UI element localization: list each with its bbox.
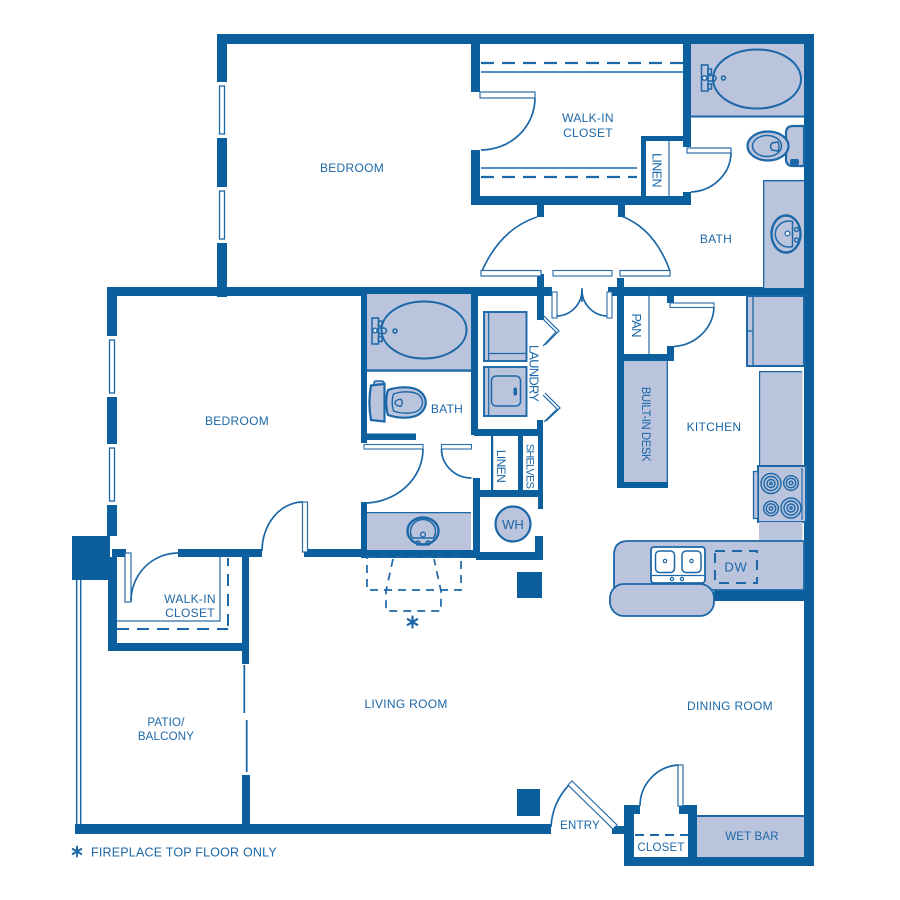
svg-text:LIVING ROOM: LIVING ROOM: [364, 697, 447, 711]
svg-text:CLOSET: CLOSET: [563, 126, 613, 140]
svg-text:LINEN: LINEN: [494, 450, 508, 482]
svg-text:BUILT-IN DESK: BUILT-IN DESK: [639, 387, 651, 462]
svg-text:BEDROOM: BEDROOM: [205, 414, 269, 428]
svg-text:DW: DW: [724, 560, 747, 575]
svg-text:ENTRY: ENTRY: [560, 820, 600, 832]
svg-text:CLOSET: CLOSET: [637, 842, 684, 854]
svg-text:PAN: PAN: [629, 313, 644, 337]
svg-text:LAUNDRY: LAUNDRY: [527, 345, 542, 402]
svg-text:WALK-IN: WALK-IN: [562, 111, 614, 125]
svg-text:KITCHEN: KITCHEN: [687, 420, 742, 434]
svg-text:DINING ROOM: DINING ROOM: [687, 699, 773, 713]
svg-text:BALCONY: BALCONY: [138, 731, 194, 743]
svg-text:BEDROOM: BEDROOM: [320, 161, 384, 175]
svg-text:BATH: BATH: [700, 232, 732, 246]
svg-text:WET BAR: WET BAR: [725, 831, 779, 843]
svg-text:WALK-IN: WALK-IN: [164, 592, 216, 606]
svg-text:WH: WH: [502, 517, 524, 532]
svg-text:LINEN: LINEN: [650, 153, 664, 187]
svg-text:BATH: BATH: [431, 402, 463, 416]
svg-text:CLOSET: CLOSET: [165, 606, 215, 620]
svg-text:PATIO/: PATIO/: [147, 717, 185, 729]
svg-text:FIREPLACE TOP FLOOR ONLY: FIREPLACE TOP FLOOR ONLY: [91, 846, 277, 860]
svg-text:SHELVES: SHELVES: [524, 444, 536, 489]
